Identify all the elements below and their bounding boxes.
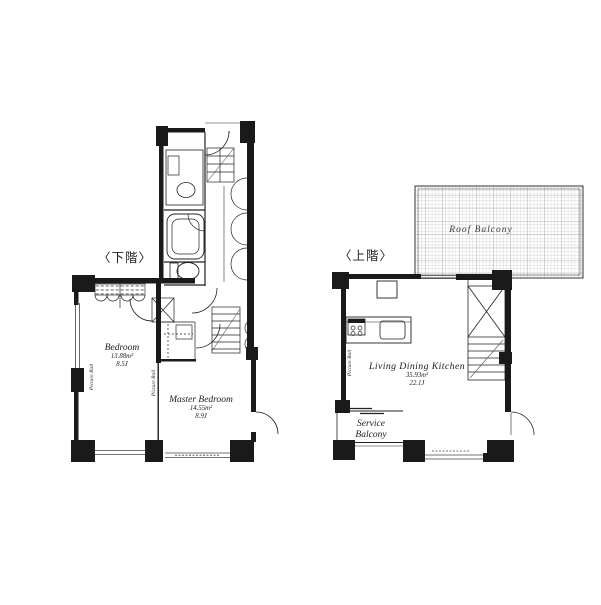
refrigerator-space [377, 281, 397, 298]
bedroom-tatami: 8.5J [116, 362, 128, 369]
ldk-name: Living Dining Kitchen [369, 362, 465, 372]
toilet [170, 263, 199, 281]
picture-rail-label-ldk: Picture Rail [347, 350, 353, 377]
stairwell-upper-floor [468, 279, 505, 380]
washbasin-area [166, 150, 203, 205]
roof-balcony-label: Roof Balcony [449, 226, 512, 236]
lower-floor-plan [71, 121, 278, 462]
bedroom-door-arc [130, 299, 152, 321]
picture-rail-label-master: Picture Rail [151, 370, 157, 397]
floorplan-canvas: 〈下階〉 〈上階〉 Bedroom 13.88m² 8.5J Master Be… [0, 0, 601, 605]
master-bedroom-tatami: 8.9J [195, 414, 207, 421]
bedroom-closet [95, 284, 145, 308]
walk-in-closet [162, 322, 195, 360]
ldk-tatami: 22.1J [410, 381, 425, 388]
stairs-lower-wing [212, 307, 253, 353]
upper-floor-label: 〈上階〉 [339, 250, 393, 263]
bathtub [167, 214, 204, 259]
kitchen-counter [346, 317, 411, 343]
ldk-area: 35.93m² [406, 373, 428, 380]
master-exterior-door-arc [256, 412, 278, 434]
floorplan-drawing [0, 0, 601, 605]
sink [380, 321, 405, 339]
corridor-closets [224, 178, 247, 282]
picture-rail-label-bedroom: Picture Rail [89, 364, 95, 391]
hall-door-arc [192, 288, 217, 313]
lower-floor-label: 〈下階〉 [98, 252, 152, 265]
ldk-exterior-door-arc [511, 412, 534, 435]
x-closet [152, 298, 174, 322]
service-balcony-label-line2: Balcony [355, 431, 386, 441]
stove [348, 319, 365, 336]
service-balcony-label-line1: Service [357, 420, 385, 430]
stairs-upper-wing [207, 148, 234, 182]
entrance-door [205, 123, 240, 155]
